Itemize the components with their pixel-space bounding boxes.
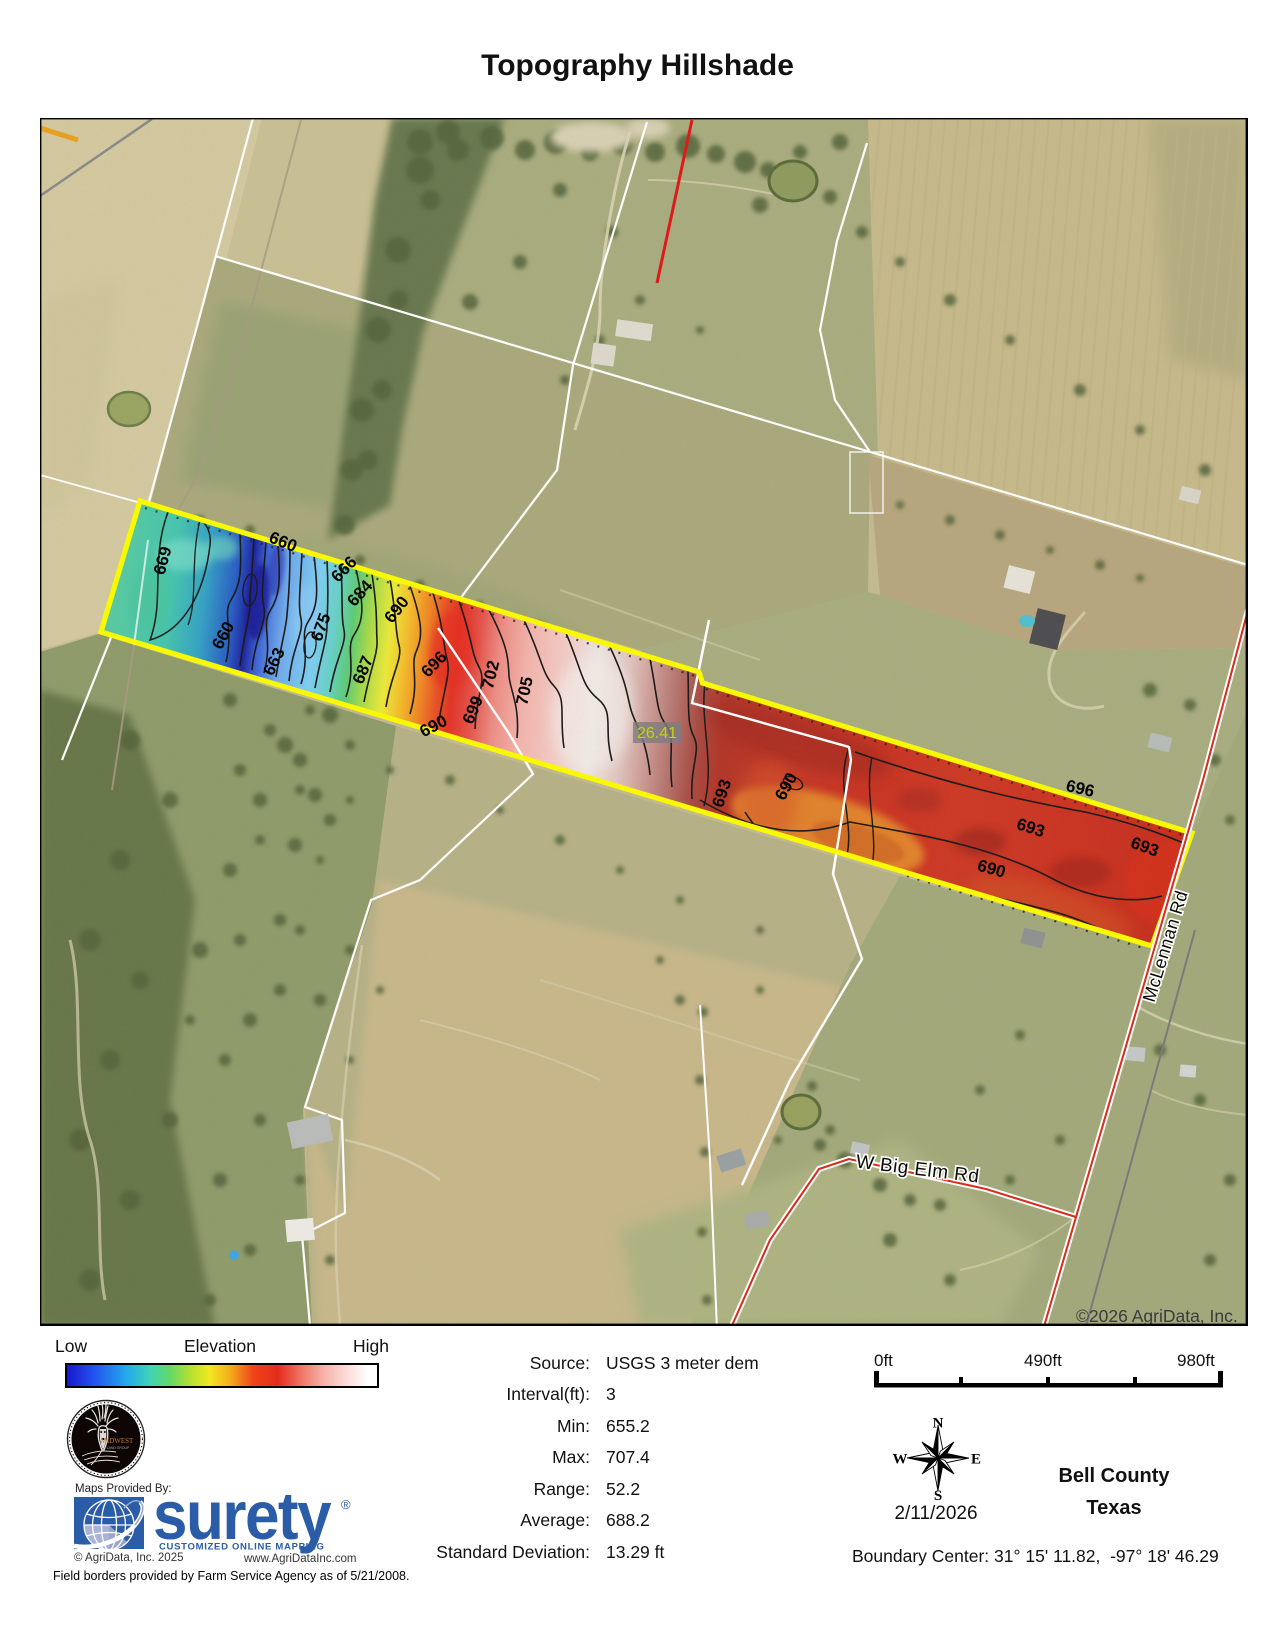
svg-text:MIDWEST: MIDWEST <box>101 1437 134 1445</box>
svg-text:S: S <box>934 1488 942 1504</box>
svg-text:N: N <box>933 1416 944 1432</box>
svg-text:E: E <box>971 1452 981 1468</box>
svg-text:W: W <box>893 1452 908 1468</box>
svg-text:LAND GROUP: LAND GROUP <box>107 1446 130 1450</box>
svg-text:CUSTOMIZED ONLINE MAPPING: CUSTOMIZED ONLINE MAPPING <box>159 1542 325 1553</box>
